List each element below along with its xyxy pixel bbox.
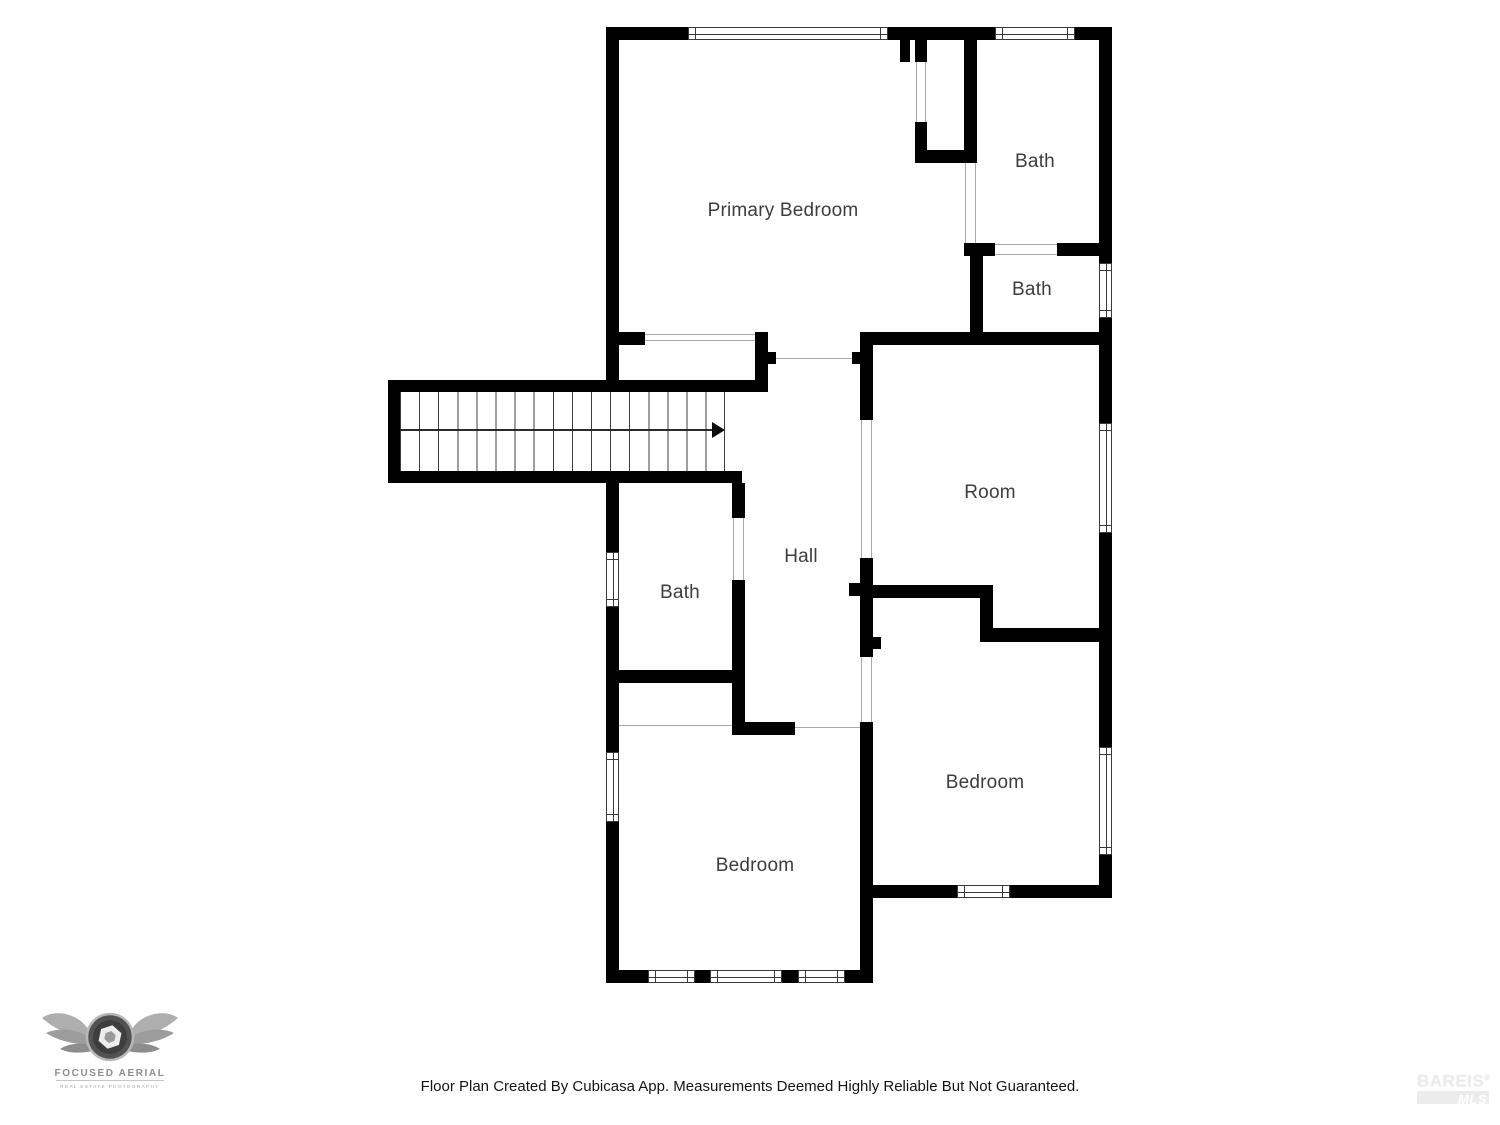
window [995,27,1075,40]
room-label-hall: Hall [784,546,818,568]
wall [695,970,710,983]
logo-aperture-icon [87,1014,133,1060]
wall [606,970,648,983]
wall [860,722,873,983]
wall [732,483,745,518]
window [1099,423,1112,533]
wall [606,670,745,683]
wall [1099,27,1112,263]
door-opening [776,358,852,359]
wall [915,40,927,62]
window [710,970,782,983]
room-label-bath-ensuite: Bath [1015,151,1055,173]
floor-plan-page: Primary Bedroom Bath Bath Room Hall Bath… [0,0,1500,1125]
door-jamb [900,40,910,62]
door-opening [925,62,926,122]
wall [606,332,645,345]
bareis-mls-watermark: BAREIS® MLS [1417,1069,1495,1104]
room-label-primary-bedroom: Primary Bedroom [708,200,859,222]
wall [1010,885,1112,898]
passage-opening [861,420,862,558]
wall [732,580,745,683]
wall [782,970,798,983]
closet-door-line [645,334,755,335]
room-label-room: Room [964,482,1015,504]
room-label-bath-hall: Bath [660,582,700,604]
window [606,752,619,822]
door-jamb [849,583,860,596]
stair-wall [388,380,768,392]
closet-front-line [619,725,732,726]
door-opening [916,62,917,122]
door-opening [743,518,744,580]
watermark-mls-bar: MLS [1417,1091,1489,1104]
watermark-brand: BAREIS® [1417,1069,1495,1090]
wall [888,27,995,40]
door-jamb [766,352,776,364]
window [648,970,695,983]
room-label-bath-small: Bath [1012,279,1052,301]
window [798,970,845,983]
door-opening [861,657,862,722]
door-opening [871,657,872,722]
closet-door-line [645,340,755,341]
wall [732,722,795,735]
stair-wall [388,380,400,483]
door-opening [995,254,1057,255]
door-opening [995,244,1057,245]
door-opening [965,163,966,243]
wall [606,822,619,983]
window [688,27,888,40]
window [1099,263,1112,318]
door-opening [975,163,976,243]
wall [980,628,1112,642]
room-label-bedroom-left: Bedroom [716,855,795,877]
wall [860,558,873,657]
door-jamb [873,637,881,649]
stair-arrow-head-icon [712,422,725,438]
room-label-bedroom-right: Bedroom [946,772,1025,794]
wall [862,585,993,598]
wall [964,243,995,256]
wall [1057,243,1112,256]
window [606,552,619,607]
wall [845,970,873,983]
window [957,885,1010,898]
wall [860,332,873,420]
wall [732,683,745,722]
wall [862,332,1112,345]
passage-opening [871,420,872,558]
wall [606,471,619,552]
stair-treads [400,392,725,471]
door-opening [795,727,860,728]
stair-direction-arrow [400,429,713,431]
door-opening [733,518,734,580]
stair-wall [388,471,742,483]
footer-disclaimer: Floor Plan Created By Cubicasa App. Meas… [0,1078,1500,1095]
wall [964,40,977,163]
wall [862,885,957,898]
wall [970,256,983,332]
window [1099,747,1112,855]
